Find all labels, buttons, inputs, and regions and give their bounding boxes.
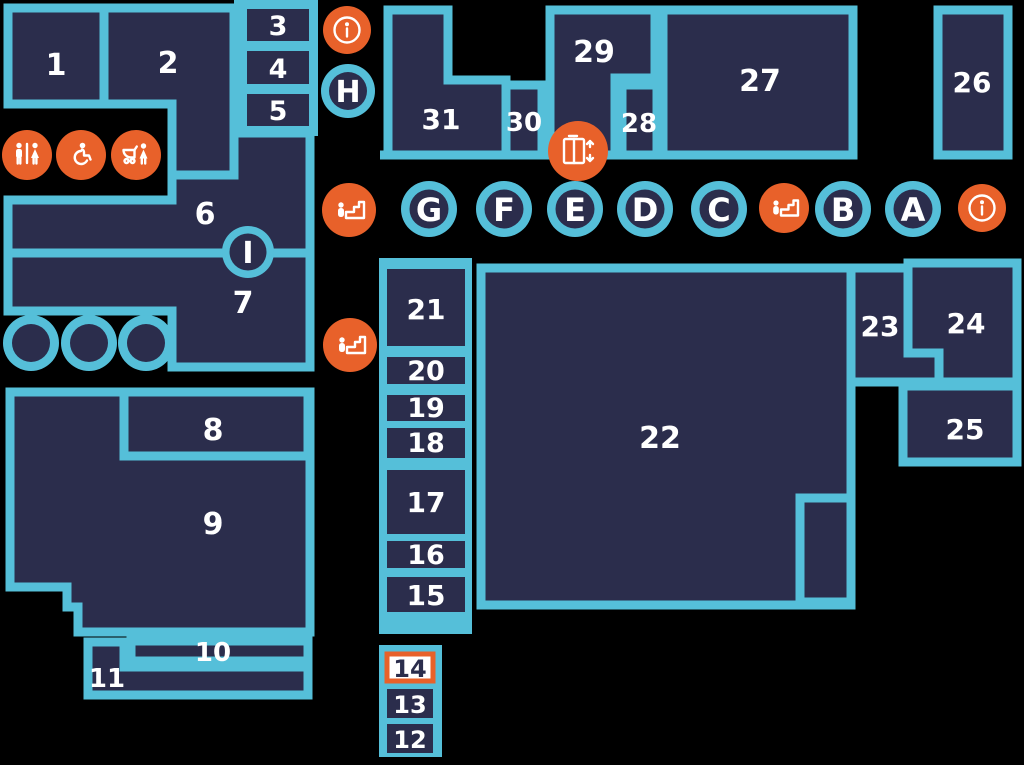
zone-marker-c[interactable]: C <box>691 181 747 237</box>
room-30-label: 30 <box>506 108 542 138</box>
zone-e-label: E <box>564 191 586 229</box>
room-3-label: 3 <box>269 11 288 42</box>
room-14-label: 14 <box>393 655 426 683</box>
room-16-label: 16 <box>407 540 445 571</box>
room-2-label: 2 <box>158 46 179 81</box>
escalator-marker-upper[interactable] <box>322 183 376 237</box>
room-unlabeled-shape[interactable] <box>800 498 851 602</box>
room-13[interactable]: 13 <box>387 689 433 719</box>
restroom-marker[interactable] <box>2 130 52 180</box>
room-11-label: 11 <box>89 664 125 694</box>
zone-marker-f[interactable]: F <box>476 181 532 237</box>
room-19-label: 19 <box>407 393 445 424</box>
zone-marker-d[interactable]: D <box>617 181 673 237</box>
room-9-label: 9 <box>203 507 224 542</box>
room-30[interactable]: 30 <box>506 85 542 155</box>
room-3[interactable]: 3 <box>247 9 309 42</box>
room-28-label: 28 <box>621 109 657 139</box>
room-5[interactable]: 5 <box>247 94 309 127</box>
room-26-label: 26 <box>953 66 992 99</box>
room-29-label: 29 <box>573 35 615 70</box>
room-5-label: 5 <box>269 96 288 127</box>
room-20-label: 20 <box>407 356 445 387</box>
room-1-label: 1 <box>46 48 67 83</box>
room-4-label: 4 <box>269 54 288 85</box>
room-4[interactable]: 4 <box>247 51 309 85</box>
room-18-label: 18 <box>407 428 445 459</box>
zone-marker-a[interactable]: A <box>885 181 941 237</box>
room-16[interactable]: 16 <box>387 540 465 571</box>
zone-g-label: G <box>416 191 442 229</box>
room-19[interactable]: 19 <box>387 393 465 424</box>
zone-marker-b[interactable]: B <box>815 181 871 237</box>
room-7-label: 7 <box>233 286 254 321</box>
baby-care-marker[interactable] <box>111 130 161 180</box>
room-12[interactable]: 12 <box>387 724 433 754</box>
room-10[interactable]: 10 <box>131 638 308 668</box>
room-12-label: 12 <box>393 726 426 754</box>
room-25-label: 25 <box>946 413 985 446</box>
room-8[interactable]: 8 <box>124 392 308 456</box>
room-21-label: 21 <box>407 293 446 326</box>
accessible-restroom-marker[interactable] <box>56 130 106 180</box>
escalator-marker-lower[interactable] <box>323 318 377 372</box>
room-21[interactable]: 21 <box>387 269 465 346</box>
elevator-marker[interactable] <box>548 121 608 181</box>
room-17[interactable]: 17 <box>387 470 465 534</box>
room-24-label: 24 <box>947 307 986 340</box>
mall-floor-map: 1 2 3 4 5 6 7 9 8 11 10 <box>0 0 1024 765</box>
room-17-label: 17 <box>407 486 446 519</box>
information-marker-top[interactable] <box>323 6 371 54</box>
zone-h-label: H <box>335 75 360 110</box>
room-31[interactable]: 31 <box>388 10 506 155</box>
room-27[interactable]: 27 <box>663 10 853 155</box>
room-6-label: 6 <box>195 197 216 232</box>
zone-marker-i[interactable]: I <box>222 226 274 278</box>
zone-marker-g[interactable]: G <box>401 181 457 237</box>
room-25[interactable]: 25 <box>903 386 1017 462</box>
restroom-icon <box>16 143 39 164</box>
room-1[interactable]: 1 <box>8 8 104 104</box>
zone-c-label: C <box>707 191 730 229</box>
room-28[interactable]: 28 <box>621 85 657 155</box>
floor-plan-svg: 1 2 3 4 5 6 7 9 8 11 10 <box>0 0 1024 765</box>
room-8-label: 8 <box>203 413 224 448</box>
room-13-label: 13 <box>393 691 426 719</box>
zone-a-label: A <box>901 191 926 229</box>
zone-f-label: F <box>493 191 515 229</box>
room-15[interactable]: 15 <box>387 577 465 612</box>
zone-b-label: B <box>831 191 855 229</box>
zone-i-label: I <box>242 236 253 271</box>
zone-marker-e[interactable]: E <box>547 181 603 237</box>
room-10-label: 10 <box>195 638 231 668</box>
room-15-label: 15 <box>407 579 446 612</box>
room-23-label: 23 <box>861 310 900 343</box>
room-18[interactable]: 18 <box>387 428 465 459</box>
room-26[interactable]: 26 <box>938 10 1008 155</box>
pillar-circles <box>3 315 174 371</box>
room-27-label: 27 <box>739 64 781 99</box>
room-22-label: 22 <box>639 421 681 456</box>
escalator-marker-row[interactable] <box>759 183 809 233</box>
room-14-highlighted[interactable]: 14 <box>387 654 433 683</box>
room-20[interactable]: 20 <box>387 356 465 387</box>
room-31-label: 31 <box>422 103 461 136</box>
zone-marker-h[interactable]: H <box>321 64 375 118</box>
zone-d-label: D <box>632 191 659 229</box>
information-marker-right[interactable] <box>958 184 1006 232</box>
